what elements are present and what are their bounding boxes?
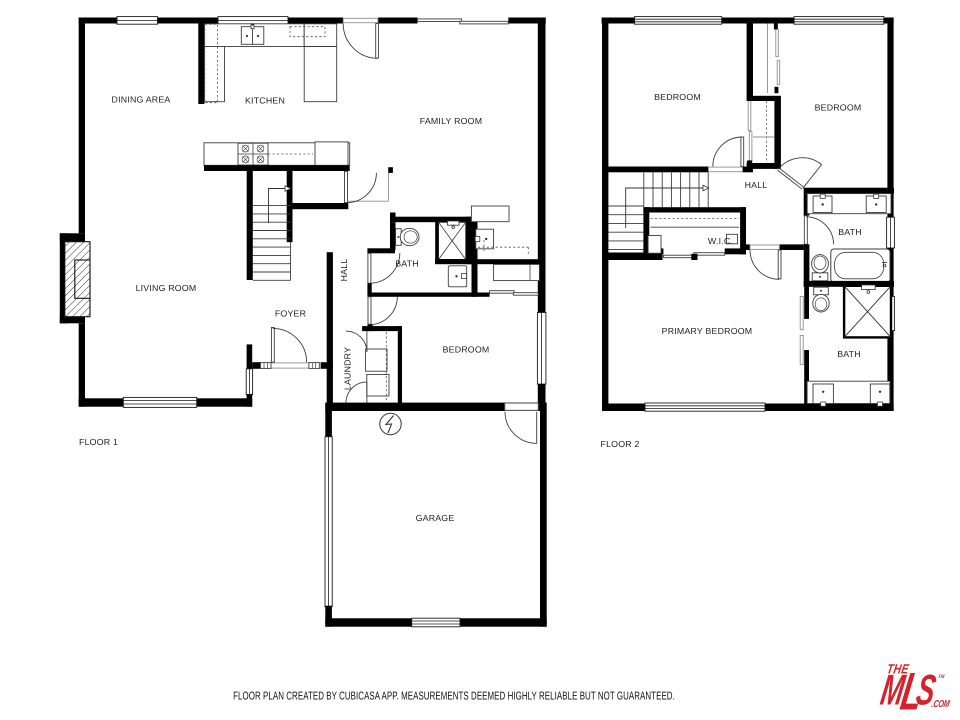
svg-text:FLOOR 2: FLOOR 2 — [601, 439, 640, 449]
svg-text:FAMILY ROOM: FAMILY ROOM — [420, 116, 483, 126]
svg-text:LIVING ROOM: LIVING ROOM — [136, 283, 197, 293]
svg-text:BATH: BATH — [837, 349, 861, 359]
svg-text:HALL: HALL — [339, 259, 349, 282]
svg-text:HALL: HALL — [745, 180, 768, 190]
svg-text:BEDROOM: BEDROOM — [443, 345, 490, 355]
svg-text:BATH: BATH — [838, 227, 862, 237]
svg-text:.COM: .COM — [931, 699, 951, 710]
svg-text:BEDROOM: BEDROOM — [815, 103, 862, 113]
svg-text:KITCHEN: KITCHEN — [245, 96, 285, 106]
svg-text:FLOOR PLAN CREATED BY CUBICASA: FLOOR PLAN CREATED BY CUBICASA APP. MEAS… — [233, 691, 675, 703]
svg-text:GARAGE: GARAGE — [416, 513, 455, 523]
svg-text:FLOOR 1: FLOOR 1 — [79, 437, 118, 447]
svg-text:FOYER: FOYER — [275, 309, 306, 319]
svg-text:W.I.C.: W.I.C. — [708, 236, 733, 246]
svg-text:LAUNDRY: LAUNDRY — [343, 347, 353, 390]
svg-text:DINING AREA: DINING AREA — [112, 95, 171, 105]
svg-text:PRIMARY BEDROOM: PRIMARY BEDROOM — [662, 326, 753, 336]
svg-text:BEDROOM: BEDROOM — [654, 92, 701, 102]
svg-text:BATH: BATH — [395, 259, 419, 269]
